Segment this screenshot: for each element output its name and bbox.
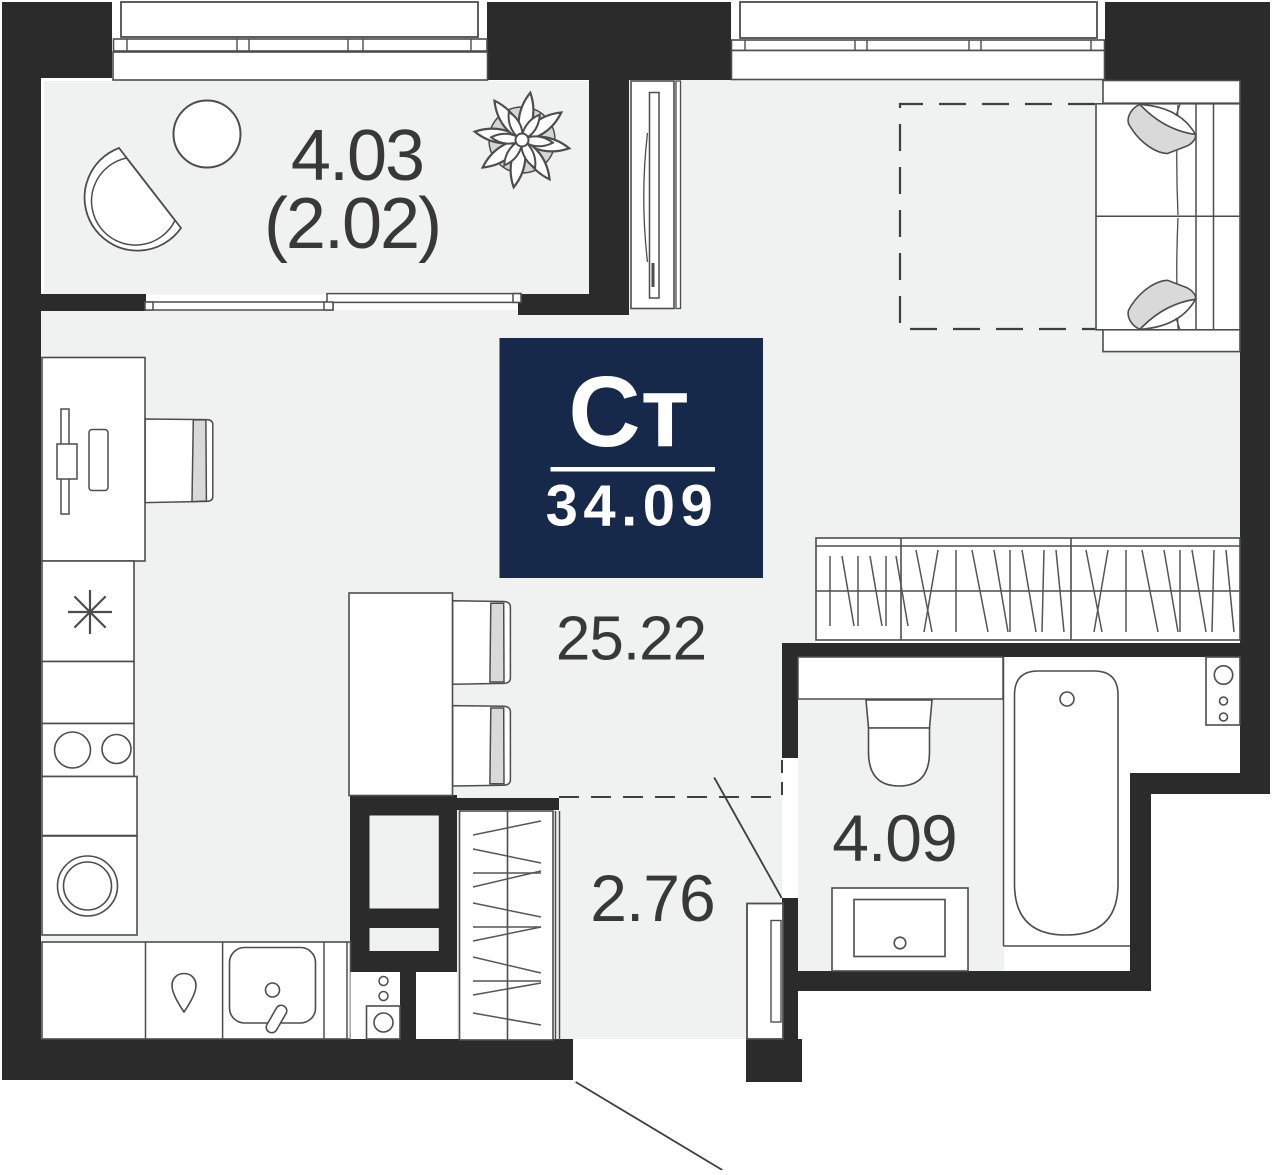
svg-text:(2.02): (2.02) [264,184,440,264]
svg-text:25.22: 25.22 [556,605,706,674]
svg-text:2.76: 2.76 [590,861,714,935]
svg-text:34.09: 34.09 [546,474,719,539]
svg-text:4.09: 4.09 [832,801,956,875]
svg-text:Ст: Ст [568,356,689,468]
